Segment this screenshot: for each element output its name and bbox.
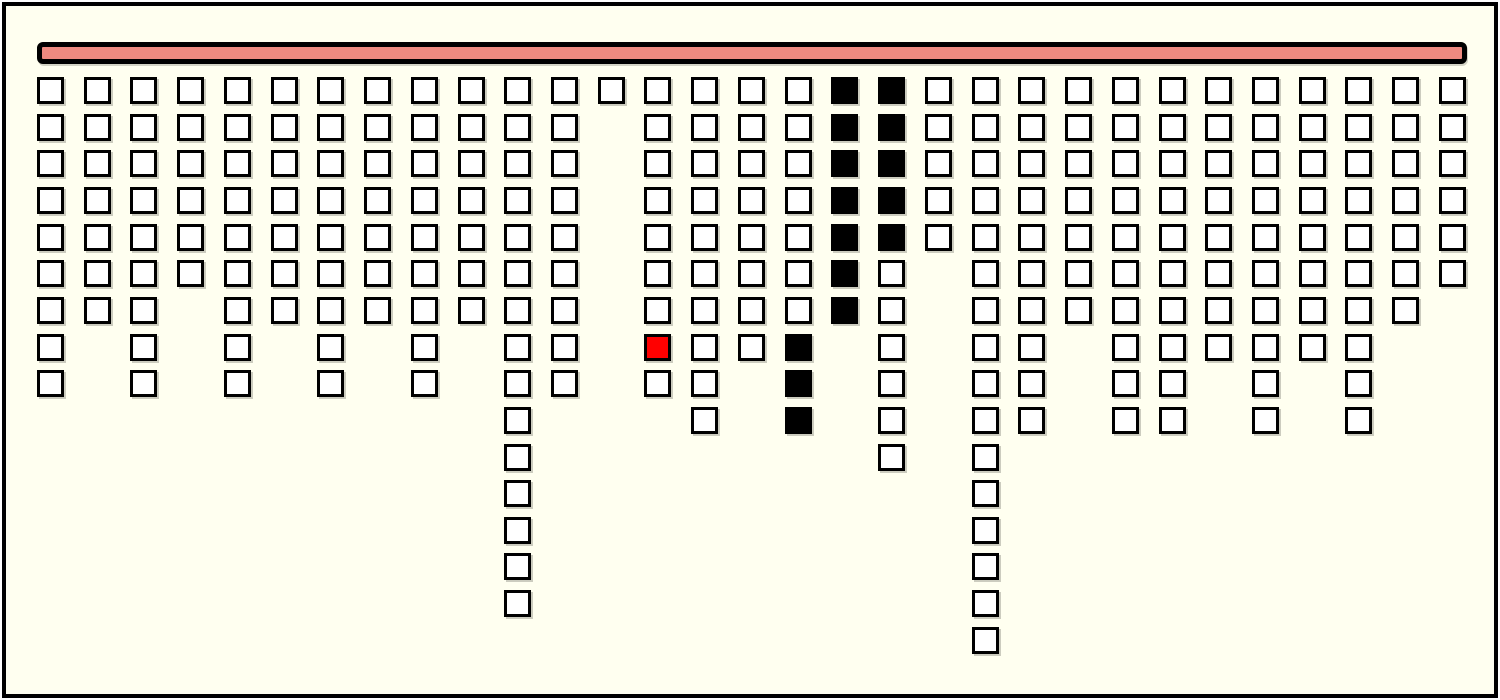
cell-empty[interactable] xyxy=(317,150,344,177)
cell-empty[interactable] xyxy=(644,150,671,177)
cell-empty[interactable] xyxy=(411,260,438,287)
cell-empty[interactable] xyxy=(1299,77,1326,104)
cell-empty[interactable] xyxy=(271,297,298,324)
cell-empty[interactable] xyxy=(1112,77,1139,104)
cell-empty[interactable] xyxy=(504,77,531,104)
cell-filled[interactable] xyxy=(785,334,812,361)
cell-empty[interactable] xyxy=(1018,370,1045,397)
cell-empty[interactable] xyxy=(458,260,485,287)
cell-empty[interactable] xyxy=(1439,150,1466,177)
cell-empty[interactable] xyxy=(1252,407,1279,434)
cell-empty[interactable] xyxy=(551,224,578,251)
cell-empty[interactable] xyxy=(691,114,718,141)
cell-empty[interactable] xyxy=(738,224,765,251)
cell-empty[interactable] xyxy=(411,224,438,251)
cell-empty[interactable] xyxy=(1159,77,1186,104)
cell-filled[interactable] xyxy=(878,224,905,251)
cell-filled[interactable] xyxy=(831,297,858,324)
cell-empty[interactable] xyxy=(130,224,157,251)
cell-empty[interactable] xyxy=(1112,334,1139,361)
cell-empty[interactable] xyxy=(177,114,204,141)
cell-empty[interactable] xyxy=(1345,407,1372,434)
cell-empty[interactable] xyxy=(1205,224,1232,251)
cell-empty[interactable] xyxy=(1159,187,1186,214)
cell-empty[interactable] xyxy=(1065,150,1092,177)
cell-empty[interactable] xyxy=(1112,297,1139,324)
cell-empty[interactable] xyxy=(1299,334,1326,361)
cell-empty[interactable] xyxy=(691,297,718,324)
cell-empty[interactable] xyxy=(878,260,905,287)
cell-empty[interactable] xyxy=(1018,77,1045,104)
cell-empty[interactable] xyxy=(738,77,765,104)
cell-empty[interactable] xyxy=(177,260,204,287)
cell-empty[interactable] xyxy=(37,150,64,177)
cell-highlight[interactable] xyxy=(644,334,671,361)
cell-empty[interactable] xyxy=(878,407,905,434)
cell-empty[interactable] xyxy=(1065,224,1092,251)
cell-empty[interactable] xyxy=(84,260,111,287)
cell-empty[interactable] xyxy=(411,334,438,361)
cell-empty[interactable] xyxy=(504,590,531,617)
cell-empty[interactable] xyxy=(504,480,531,507)
cell-empty[interactable] xyxy=(177,224,204,251)
cell-empty[interactable] xyxy=(1018,334,1045,361)
cell-empty[interactable] xyxy=(224,334,251,361)
cell-empty[interactable] xyxy=(37,224,64,251)
cell-empty[interactable] xyxy=(504,517,531,544)
cell-empty[interactable] xyxy=(878,334,905,361)
cell-empty[interactable] xyxy=(551,150,578,177)
cell-empty[interactable] xyxy=(925,150,952,177)
cell-empty[interactable] xyxy=(130,114,157,141)
cell-empty[interactable] xyxy=(411,114,438,141)
cell-empty[interactable] xyxy=(1065,297,1092,324)
cell-empty[interactable] xyxy=(37,260,64,287)
cell-empty[interactable] xyxy=(130,260,157,287)
cell-empty[interactable] xyxy=(738,260,765,287)
cell-empty[interactable] xyxy=(738,334,765,361)
cell-empty[interactable] xyxy=(504,370,531,397)
cell-empty[interactable] xyxy=(1439,77,1466,104)
cell-empty[interactable] xyxy=(644,370,671,397)
cell-empty[interactable] xyxy=(364,114,391,141)
cell-empty[interactable] xyxy=(271,224,298,251)
cell-empty[interactable] xyxy=(1018,114,1045,141)
cell-empty[interactable] xyxy=(1159,114,1186,141)
cell-empty[interactable] xyxy=(925,224,952,251)
cell-empty[interactable] xyxy=(1112,187,1139,214)
cell-empty[interactable] xyxy=(364,77,391,104)
cell-empty[interactable] xyxy=(878,444,905,471)
cell-empty[interactable] xyxy=(364,260,391,287)
cell-empty[interactable] xyxy=(644,260,671,287)
cell-empty[interactable] xyxy=(1205,297,1232,324)
cell-empty[interactable] xyxy=(1392,77,1419,104)
cell-empty[interactable] xyxy=(1299,297,1326,324)
cell-empty[interactable] xyxy=(1345,260,1372,287)
cell-empty[interactable] xyxy=(504,224,531,251)
cell-empty[interactable] xyxy=(1392,224,1419,251)
cell-empty[interactable] xyxy=(1112,114,1139,141)
cell-empty[interactable] xyxy=(691,224,718,251)
cell-empty[interactable] xyxy=(130,150,157,177)
cell-empty[interactable] xyxy=(644,187,671,214)
cell-empty[interactable] xyxy=(551,297,578,324)
cell-empty[interactable] xyxy=(504,150,531,177)
cell-empty[interactable] xyxy=(644,77,671,104)
cell-empty[interactable] xyxy=(364,297,391,324)
cell-empty[interactable] xyxy=(1299,224,1326,251)
cell-empty[interactable] xyxy=(1345,187,1372,214)
cell-empty[interactable] xyxy=(130,187,157,214)
cell-empty[interactable] xyxy=(1065,187,1092,214)
cell-empty[interactable] xyxy=(1205,260,1232,287)
cell-empty[interactable] xyxy=(972,407,999,434)
cell-empty[interactable] xyxy=(1159,260,1186,287)
cell-empty[interactable] xyxy=(691,260,718,287)
cell-empty[interactable] xyxy=(925,187,952,214)
cell-empty[interactable] xyxy=(1205,334,1232,361)
cell-empty[interactable] xyxy=(37,187,64,214)
cell-empty[interactable] xyxy=(411,297,438,324)
cell-empty[interactable] xyxy=(738,187,765,214)
cell-empty[interactable] xyxy=(691,334,718,361)
cell-empty[interactable] xyxy=(1112,224,1139,251)
cell-empty[interactable] xyxy=(644,224,671,251)
cell-empty[interactable] xyxy=(224,260,251,287)
cell-empty[interactable] xyxy=(551,260,578,287)
cell-empty[interactable] xyxy=(1252,297,1279,324)
cell-empty[interactable] xyxy=(644,114,671,141)
cell-empty[interactable] xyxy=(1065,114,1092,141)
cell-filled[interactable] xyxy=(831,150,858,177)
cell-empty[interactable] xyxy=(1065,260,1092,287)
cell-empty[interactable] xyxy=(271,187,298,214)
cell-empty[interactable] xyxy=(224,224,251,251)
cell-empty[interactable] xyxy=(1439,114,1466,141)
cell-empty[interactable] xyxy=(551,114,578,141)
cell-filled[interactable] xyxy=(831,114,858,141)
cell-empty[interactable] xyxy=(130,297,157,324)
cell-empty[interactable] xyxy=(458,150,485,177)
cell-empty[interactable] xyxy=(224,370,251,397)
cell-empty[interactable] xyxy=(1252,77,1279,104)
cell-empty[interactable] xyxy=(411,77,438,104)
cell-empty[interactable] xyxy=(458,114,485,141)
app-window xyxy=(0,0,1500,700)
cell-empty[interactable] xyxy=(37,370,64,397)
cell-empty[interactable] xyxy=(1159,407,1186,434)
cell-empty[interactable] xyxy=(1345,297,1372,324)
cell-empty[interactable] xyxy=(504,553,531,580)
cell-empty[interactable] xyxy=(1159,224,1186,251)
cell-empty[interactable] xyxy=(1018,297,1045,324)
cell-empty[interactable] xyxy=(972,590,999,617)
cell-empty[interactable] xyxy=(224,297,251,324)
cell-empty[interactable] xyxy=(317,114,344,141)
cell-empty[interactable] xyxy=(1392,260,1419,287)
cell-empty[interactable] xyxy=(411,150,438,177)
cell-empty[interactable] xyxy=(37,77,64,104)
cell-empty[interactable] xyxy=(504,407,531,434)
cell-empty[interactable] xyxy=(37,297,64,324)
cell-empty[interactable] xyxy=(458,224,485,251)
cell-empty[interactable] xyxy=(224,77,251,104)
cell-empty[interactable] xyxy=(458,77,485,104)
cell-empty[interactable] xyxy=(551,370,578,397)
cell-empty[interactable] xyxy=(972,150,999,177)
cell-empty[interactable] xyxy=(1112,260,1139,287)
cell-empty[interactable] xyxy=(1299,260,1326,287)
cell-empty[interactable] xyxy=(84,297,111,324)
cell-empty[interactable] xyxy=(504,260,531,287)
cell-empty[interactable] xyxy=(1392,187,1419,214)
cell-empty[interactable] xyxy=(1345,370,1372,397)
cell-empty[interactable] xyxy=(177,150,204,177)
cell-empty[interactable] xyxy=(1299,114,1326,141)
cell-empty[interactable] xyxy=(317,370,344,397)
cell-empty[interactable] xyxy=(1065,77,1092,104)
cell-empty[interactable] xyxy=(1018,407,1045,434)
cell-empty[interactable] xyxy=(1252,334,1279,361)
cell-empty[interactable] xyxy=(1159,370,1186,397)
cell-empty[interactable] xyxy=(598,77,625,104)
cell-empty[interactable] xyxy=(317,224,344,251)
cell-empty[interactable] xyxy=(1159,297,1186,324)
cell-filled[interactable] xyxy=(878,150,905,177)
cell-empty[interactable] xyxy=(925,77,952,104)
cell-empty[interactable] xyxy=(551,77,578,104)
cell-empty[interactable] xyxy=(84,224,111,251)
cell-empty[interactable] xyxy=(1205,150,1232,177)
cell-empty[interactable] xyxy=(504,334,531,361)
cell-empty[interactable] xyxy=(1345,150,1372,177)
cell-empty[interactable] xyxy=(177,77,204,104)
cell-empty[interactable] xyxy=(130,334,157,361)
cell-empty[interactable] xyxy=(785,150,812,177)
cell-empty[interactable] xyxy=(972,517,999,544)
cell-empty[interactable] xyxy=(1299,187,1326,214)
cell-empty[interactable] xyxy=(364,150,391,177)
cell-empty[interactable] xyxy=(1112,150,1139,177)
cell-filled[interactable] xyxy=(785,370,812,397)
cell-empty[interactable] xyxy=(317,334,344,361)
cell-filled[interactable] xyxy=(831,260,858,287)
cell-empty[interactable] xyxy=(504,187,531,214)
cell-empty[interactable] xyxy=(551,187,578,214)
cell-filled[interactable] xyxy=(831,224,858,251)
cell-empty[interactable] xyxy=(1345,114,1372,141)
cell-empty[interactable] xyxy=(364,187,391,214)
cell-empty[interactable] xyxy=(317,77,344,104)
cell-empty[interactable] xyxy=(504,114,531,141)
cell-empty[interactable] xyxy=(317,297,344,324)
cell-empty[interactable] xyxy=(785,260,812,287)
cell-empty[interactable] xyxy=(878,297,905,324)
cell-empty[interactable] xyxy=(972,114,999,141)
cell-empty[interactable] xyxy=(1018,150,1045,177)
cell-empty[interactable] xyxy=(972,77,999,104)
cell-empty[interactable] xyxy=(1205,77,1232,104)
cell-empty[interactable] xyxy=(972,444,999,471)
cell-empty[interactable] xyxy=(271,114,298,141)
cell-empty[interactable] xyxy=(37,334,64,361)
cell-empty[interactable] xyxy=(1018,260,1045,287)
cell-empty[interactable] xyxy=(1159,150,1186,177)
cell-empty[interactable] xyxy=(738,150,765,177)
cell-empty[interactable] xyxy=(785,187,812,214)
cell-empty[interactable] xyxy=(972,480,999,507)
cell-empty[interactable] xyxy=(411,187,438,214)
cell-empty[interactable] xyxy=(691,407,718,434)
cell-empty[interactable] xyxy=(1392,114,1419,141)
cell-empty[interactable] xyxy=(878,370,905,397)
cell-empty[interactable] xyxy=(84,187,111,214)
cell-empty[interactable] xyxy=(1112,407,1139,434)
cell-empty[interactable] xyxy=(224,150,251,177)
cell-empty[interactable] xyxy=(1439,187,1466,214)
cell-empty[interactable] xyxy=(925,114,952,141)
cell-empty[interactable] xyxy=(224,187,251,214)
cell-filled[interactable] xyxy=(878,114,905,141)
cell-empty[interactable] xyxy=(1205,114,1232,141)
cell-filled[interactable] xyxy=(878,77,905,104)
cell-empty[interactable] xyxy=(224,114,251,141)
cell-empty[interactable] xyxy=(271,260,298,287)
cell-empty[interactable] xyxy=(1345,224,1372,251)
cell-empty[interactable] xyxy=(364,224,391,251)
cell-empty[interactable] xyxy=(1252,260,1279,287)
cell-empty[interactable] xyxy=(972,260,999,287)
cell-empty[interactable] xyxy=(317,260,344,287)
cell-empty[interactable] xyxy=(271,150,298,177)
cell-empty[interactable] xyxy=(691,77,718,104)
cell-empty[interactable] xyxy=(1252,150,1279,177)
cell-empty[interactable] xyxy=(972,334,999,361)
cell-empty[interactable] xyxy=(1439,224,1466,251)
cell-empty[interactable] xyxy=(972,224,999,251)
cell-empty[interactable] xyxy=(1345,77,1372,104)
cell-empty[interactable] xyxy=(1018,187,1045,214)
cell-empty[interactable] xyxy=(972,370,999,397)
cell-empty[interactable] xyxy=(785,297,812,324)
cell-empty[interactable] xyxy=(458,187,485,214)
cell-empty[interactable] xyxy=(317,187,344,214)
cell-empty[interactable] xyxy=(1392,150,1419,177)
cell-empty[interactable] xyxy=(691,150,718,177)
cell-empty[interactable] xyxy=(1299,150,1326,177)
cell-empty[interactable] xyxy=(130,370,157,397)
cell-empty[interactable] xyxy=(84,114,111,141)
cell-empty[interactable] xyxy=(1252,224,1279,251)
cell-empty[interactable] xyxy=(458,297,485,324)
cell-empty[interactable] xyxy=(271,77,298,104)
cell-empty[interactable] xyxy=(1159,334,1186,361)
cell-empty[interactable] xyxy=(972,297,999,324)
cell-empty[interactable] xyxy=(84,150,111,177)
cell-empty[interactable] xyxy=(1112,370,1139,397)
cell-empty[interactable] xyxy=(785,114,812,141)
cell-empty[interactable] xyxy=(738,114,765,141)
cell-empty[interactable] xyxy=(551,334,578,361)
cell-empty[interactable] xyxy=(130,77,157,104)
cell-empty[interactable] xyxy=(84,77,111,104)
cell-empty[interactable] xyxy=(504,297,531,324)
cell-empty[interactable] xyxy=(1252,187,1279,214)
cell-empty[interactable] xyxy=(504,444,531,471)
cell-empty[interactable] xyxy=(1018,224,1045,251)
cell-empty[interactable] xyxy=(691,187,718,214)
cell-filled[interactable] xyxy=(831,77,858,104)
cell-empty[interactable] xyxy=(411,370,438,397)
cell-empty[interactable] xyxy=(1252,370,1279,397)
cell-empty[interactable] xyxy=(1392,297,1419,324)
cell-empty[interactable] xyxy=(1439,260,1466,287)
cell-empty[interactable] xyxy=(1205,187,1232,214)
cell-empty[interactable] xyxy=(972,187,999,214)
cell-empty[interactable] xyxy=(1252,114,1279,141)
cell-empty[interactable] xyxy=(691,370,718,397)
cell-filled[interactable] xyxy=(831,187,858,214)
cell-empty[interactable] xyxy=(785,224,812,251)
cell-empty[interactable] xyxy=(37,114,64,141)
cell-empty[interactable] xyxy=(785,77,812,104)
cell-filled[interactable] xyxy=(878,187,905,214)
cell-empty[interactable] xyxy=(972,553,999,580)
cell-empty[interactable] xyxy=(644,297,671,324)
block-board xyxy=(0,0,1500,700)
cell-filled[interactable] xyxy=(785,407,812,434)
cell-empty[interactable] xyxy=(738,297,765,324)
cell-empty[interactable] xyxy=(1345,334,1372,361)
cell-empty[interactable] xyxy=(972,627,999,654)
cell-empty[interactable] xyxy=(177,187,204,214)
